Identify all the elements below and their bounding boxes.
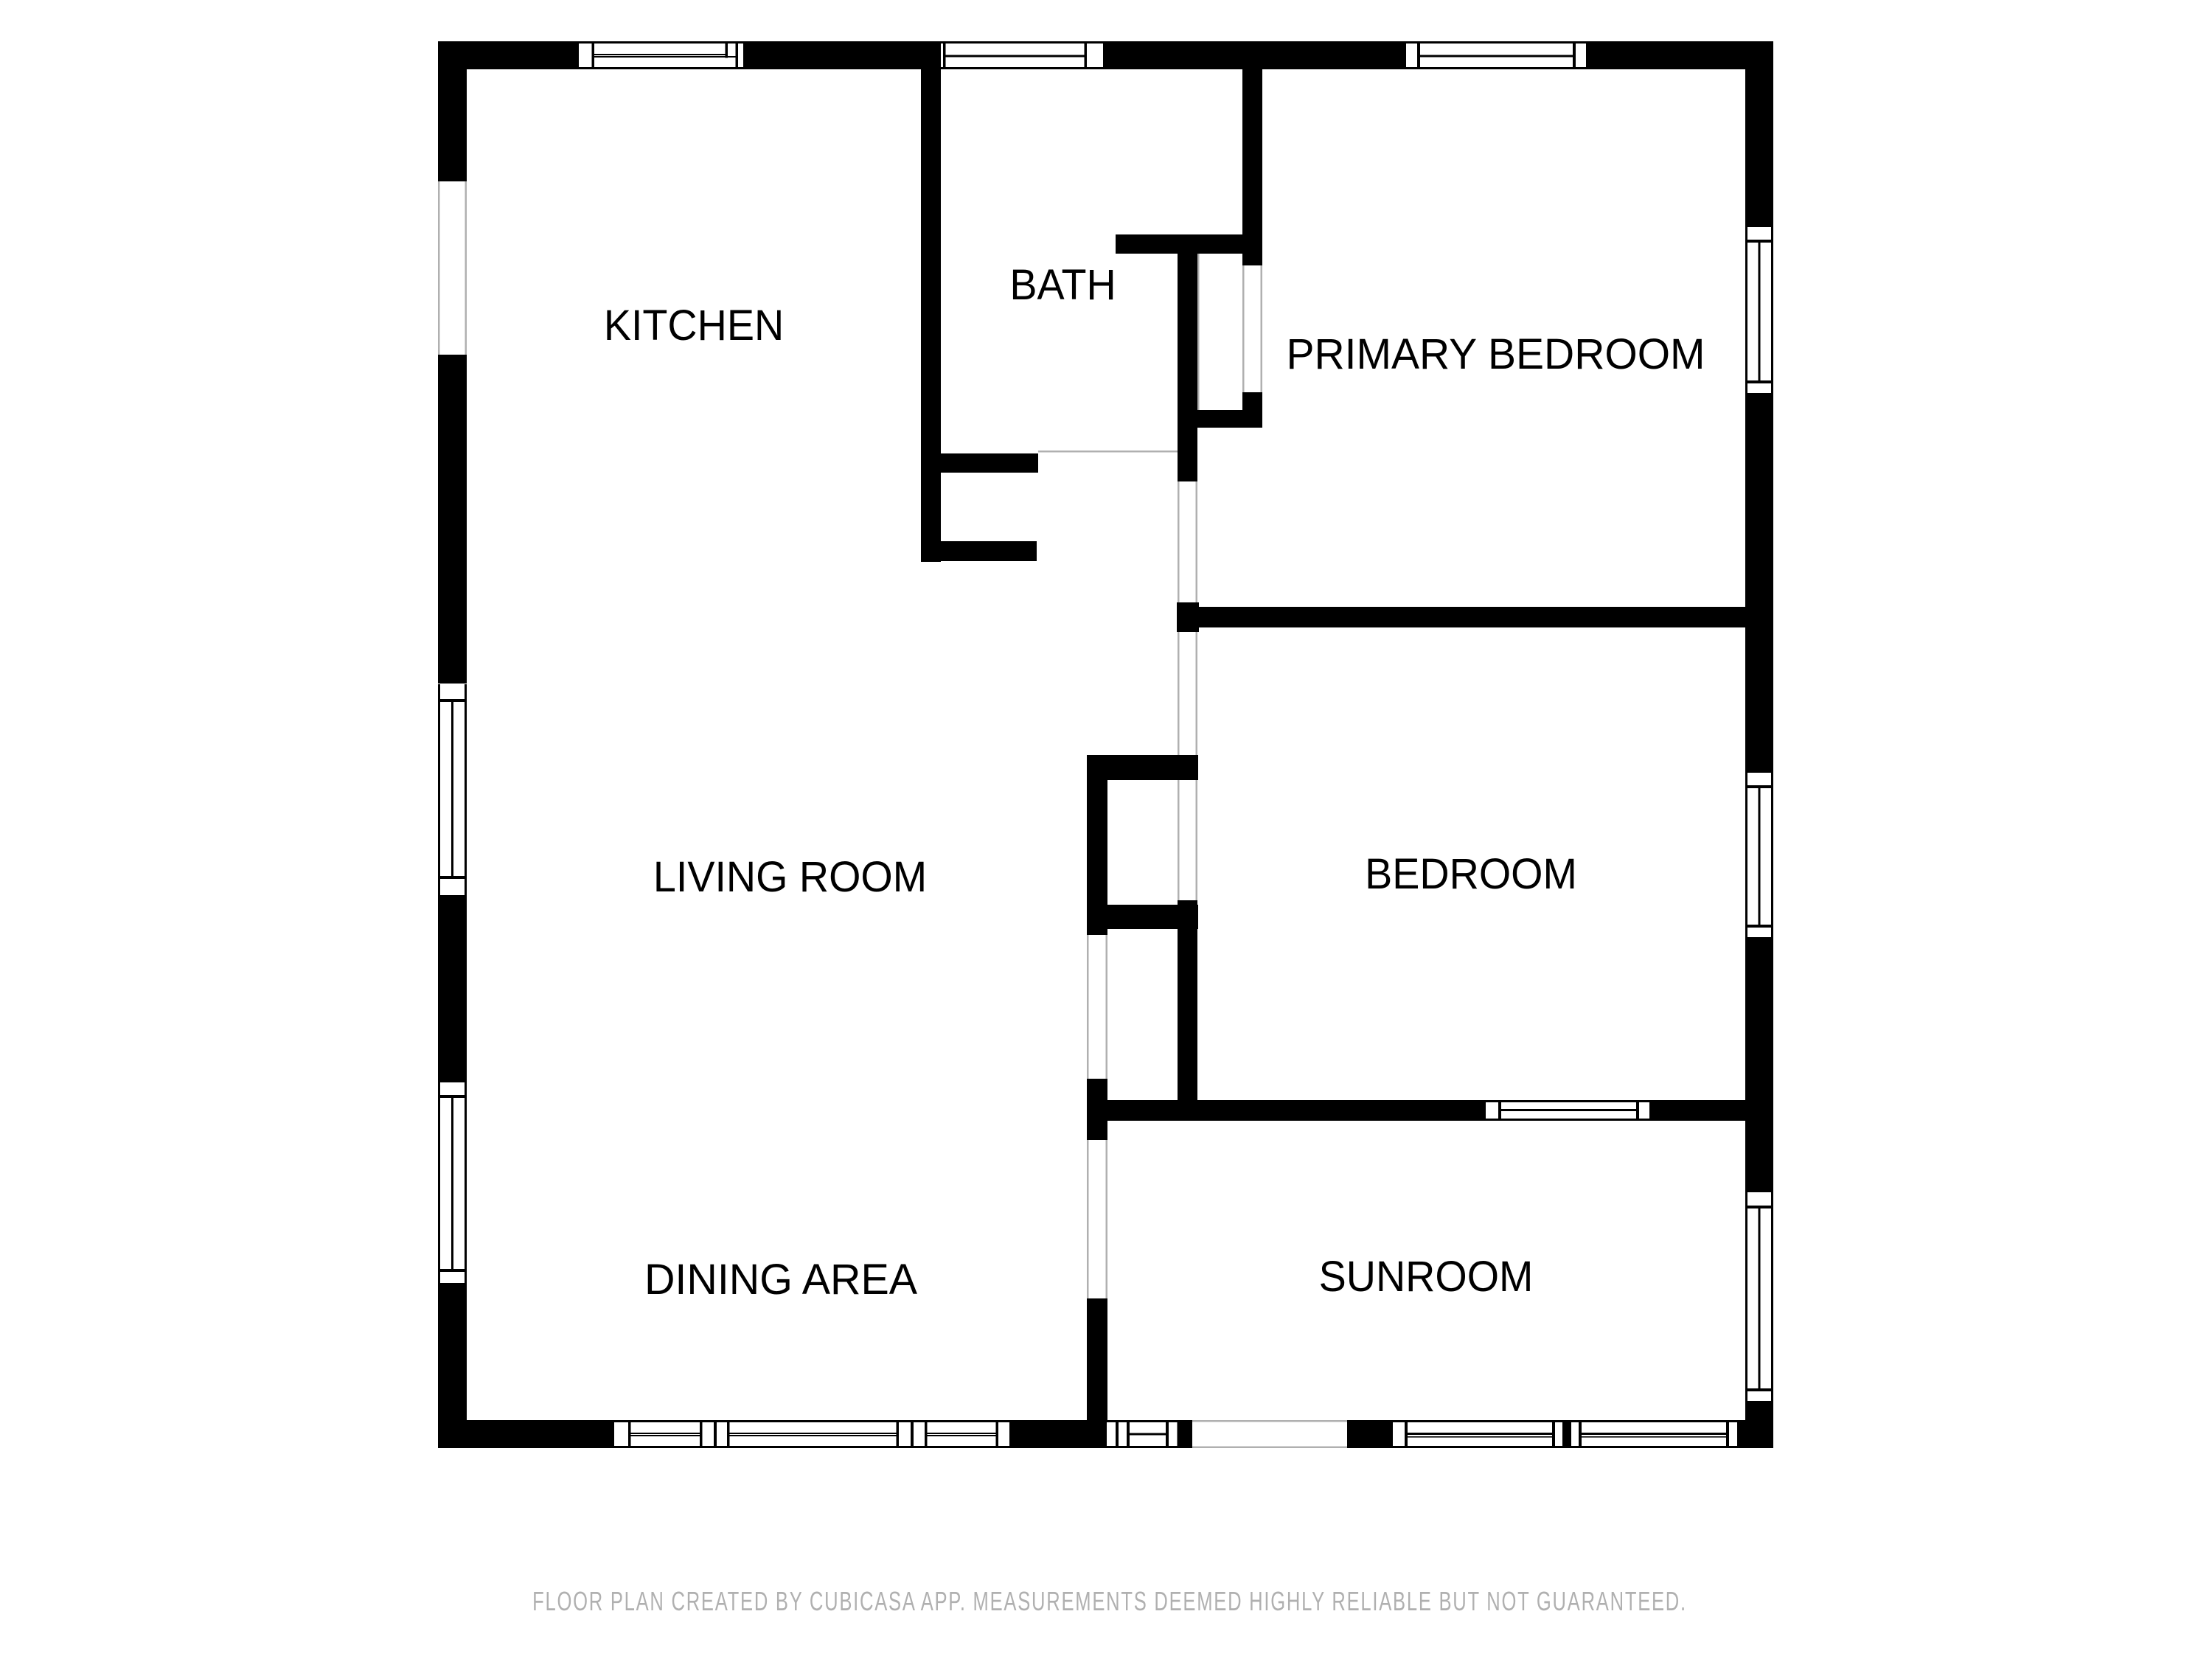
svg-text:FLOOR PLAN CREATED BY CUBICASA: FLOOR PLAN CREATED BY CUBICASA APP. MEAS… — [532, 1585, 1687, 1616]
svg-text:KITCHEN: KITCHEN — [604, 302, 784, 349]
svg-text:SUNROOM: SUNROOM — [1319, 1253, 1534, 1301]
svg-text:BEDROOM: BEDROOM — [1365, 851, 1577, 898]
svg-text:LIVING ROOM: LIVING ROOM — [653, 854, 927, 901]
svg-text:DINING AREA: DINING AREA — [644, 1256, 918, 1304]
svg-text:BATH: BATH — [1009, 262, 1116, 309]
svg-text:PRIMARY BEDROOM: PRIMARY BEDROOM — [1286, 331, 1705, 379]
